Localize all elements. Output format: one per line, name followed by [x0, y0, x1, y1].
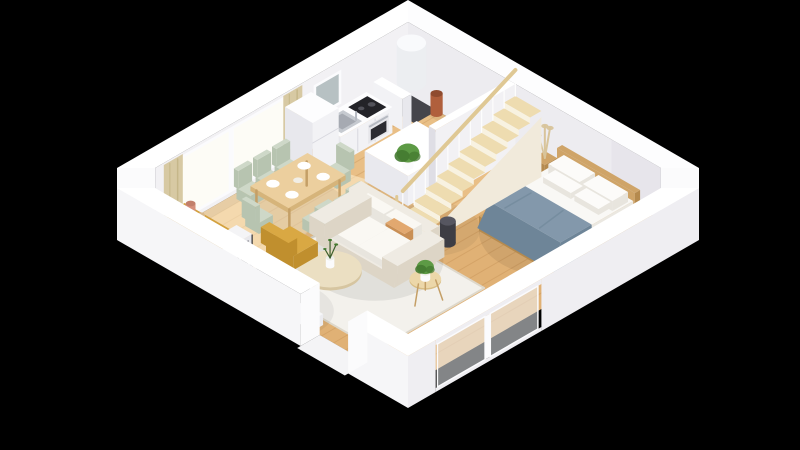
dining-chair-back-se [350, 150, 354, 171]
plate [266, 180, 279, 188]
water-heater-top [397, 34, 426, 51]
island-plant-leaf [395, 150, 410, 162]
plate [285, 191, 298, 199]
burner [368, 102, 376, 107]
frontwall-left-cap [301, 283, 320, 346]
understair-canister-top [440, 216, 456, 225]
coffee-table-vase-base [326, 264, 335, 269]
serving-bowl [293, 177, 303, 183]
dining-chair-back-sw [253, 158, 257, 179]
pampas-head [546, 126, 553, 130]
frontwall-left2-cap [348, 311, 367, 374]
side-table-plant-leaf [426, 266, 435, 274]
side-table-plant-leaf [415, 265, 426, 274]
island-plant-pot-base [403, 164, 414, 170]
burner [358, 107, 364, 111]
terracotta-vase-base [430, 110, 442, 117]
sprig-leaf [328, 239, 332, 241]
sideboard-vase-top [186, 201, 196, 207]
sprig-leaf [323, 248, 326, 250]
sprig-leaf [334, 243, 338, 245]
terracotta-vase-top [430, 90, 442, 97]
dining-chair-back-sw [272, 147, 276, 168]
side-table-plant-pot-base [420, 276, 430, 282]
apartment-3d-render [0, 0, 800, 450]
dining-chair-back-se [256, 205, 260, 226]
screenshot-root [0, 0, 800, 450]
dining-chair-back-sw [234, 169, 238, 190]
plate [297, 162, 310, 170]
plate [316, 173, 329, 181]
island-plant-leaf [409, 152, 421, 162]
sliding-door-mullion [485, 314, 490, 360]
